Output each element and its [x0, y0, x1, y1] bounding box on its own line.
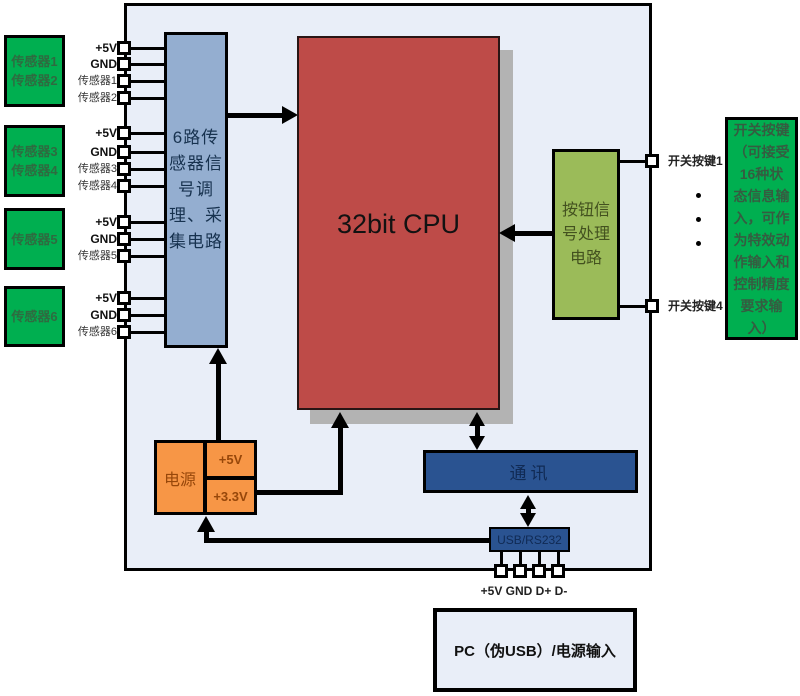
wire	[338, 426, 343, 495]
arrow-up-icon	[209, 348, 227, 364]
arrow-up-icon	[331, 412, 349, 428]
wire	[204, 538, 489, 543]
connector-pin	[645, 154, 659, 168]
pin-label: 传感器4	[40, 179, 117, 193]
wire	[130, 255, 166, 258]
connector-pin	[117, 91, 131, 105]
ellipsis-dot-icon	[696, 193, 701, 198]
wire	[500, 551, 503, 565]
comm-block: 通讯	[423, 450, 638, 493]
power-block: 电源	[154, 440, 206, 515]
arrow-left-icon	[499, 224, 515, 242]
pin-label: +5V	[40, 41, 117, 55]
connector-pin	[117, 145, 131, 159]
block-diagram: 传感器1 传感器2 传感器3 传感器4 传感器5 传感器6 +5V GND 传感…	[0, 0, 800, 696]
switch-note-box: 开关按键 （可接受 16种状 态信息输 入，可作 为特效动 作输入和 控制精度 …	[725, 117, 798, 340]
connector-pin	[117, 74, 131, 88]
wire	[130, 297, 166, 300]
pin-label: 传感器5	[40, 249, 117, 263]
arrow-up-icon	[520, 495, 536, 509]
connector-pin	[494, 564, 508, 578]
pin-label: 传感器2	[40, 91, 117, 105]
arrow-right-icon	[282, 106, 298, 124]
wire	[130, 331, 166, 334]
wire	[130, 238, 166, 241]
connector-pin	[513, 564, 527, 578]
wire	[619, 160, 647, 163]
wire	[130, 151, 166, 154]
connector-pin	[551, 564, 565, 578]
wire	[130, 314, 166, 317]
connector-pin	[117, 215, 131, 229]
pin-label: 传感器1	[40, 74, 117, 88]
connector-pin	[117, 232, 131, 246]
arrow-down-icon	[469, 436, 485, 450]
connector-pin	[117, 325, 131, 339]
power-3v3-block: +3.3V	[204, 477, 257, 515]
cpu-label: 32bit CPU	[299, 209, 498, 240]
connector-pin	[645, 299, 659, 313]
usb-rs232-block: USB/RS232	[489, 527, 570, 552]
connector-pin	[117, 291, 131, 305]
pin-label: +5V	[40, 215, 117, 229]
wire	[557, 551, 560, 565]
wire	[538, 551, 541, 565]
connector-pin	[117, 57, 131, 71]
pin-label: GND	[40, 232, 117, 246]
arrow-up-icon	[469, 412, 485, 426]
connector-pin	[117, 308, 131, 322]
pin-label: +5V	[40, 126, 117, 140]
connector-pin	[117, 249, 131, 263]
wire	[130, 47, 166, 50]
pin-label: GND	[40, 57, 117, 71]
switch-key-label: 开关按键4	[668, 299, 723, 313]
wire	[228, 113, 284, 118]
wire	[130, 80, 166, 83]
wire	[130, 97, 166, 100]
pin-label: GND	[40, 308, 117, 322]
pin-label: 传感器3	[40, 162, 117, 176]
arrow-up-icon	[197, 516, 215, 532]
pin-label: +5V	[40, 291, 117, 305]
pin-label: GND	[40, 145, 117, 159]
wire	[130, 185, 166, 188]
wire	[514, 231, 552, 236]
connector-pin	[532, 564, 546, 578]
pc-input-box: PC（伪USB）/电源输入	[433, 608, 637, 692]
usb-pins-label: +5V GND D+ D-	[454, 584, 594, 598]
wire	[619, 305, 647, 308]
signal-conditioning-block: 6路传 感器信 号调 理、采 集电路	[164, 32, 228, 348]
connector-pin	[117, 179, 131, 193]
wire	[130, 221, 166, 224]
wire	[130, 63, 166, 66]
connector-pin	[117, 162, 131, 176]
button-circuit-block: 按钮信 号处理 电路	[552, 149, 620, 320]
wire	[216, 362, 221, 440]
power-5v-block: +5V	[204, 440, 257, 479]
switch-key-label: 开关按键1	[668, 154, 723, 168]
arrow-down-icon	[520, 513, 536, 527]
ellipsis-dot-icon	[696, 241, 701, 246]
wire	[257, 490, 343, 495]
ellipsis-dot-icon	[696, 217, 701, 222]
wire	[519, 551, 522, 565]
wire	[130, 132, 166, 135]
connector-pin	[117, 41, 131, 55]
cpu-block: 32bit CPU	[297, 36, 500, 410]
connector-pin	[117, 126, 131, 140]
wire	[130, 168, 166, 171]
pin-label: 传感器6	[40, 325, 117, 339]
